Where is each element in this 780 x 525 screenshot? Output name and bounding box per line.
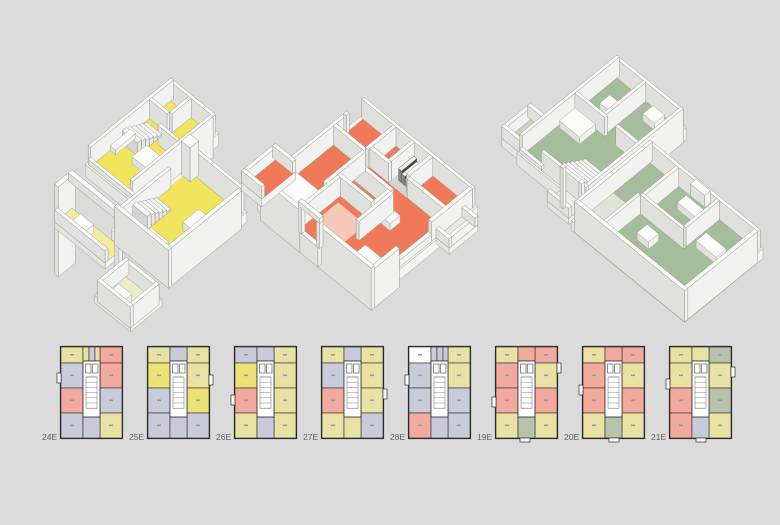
svg-text:21E: 21E [651,432,666,442]
svg-text:28E: 28E [390,432,405,442]
svg-text:24E: 24E [42,432,57,442]
svg-text:26E: 26E [216,432,231,442]
svg-text:25E: 25E [129,432,144,442]
svg-text:20E: 20E [564,432,579,442]
svg-text:19E: 19E [477,432,492,442]
svg-text:27E: 27E [303,432,318,442]
